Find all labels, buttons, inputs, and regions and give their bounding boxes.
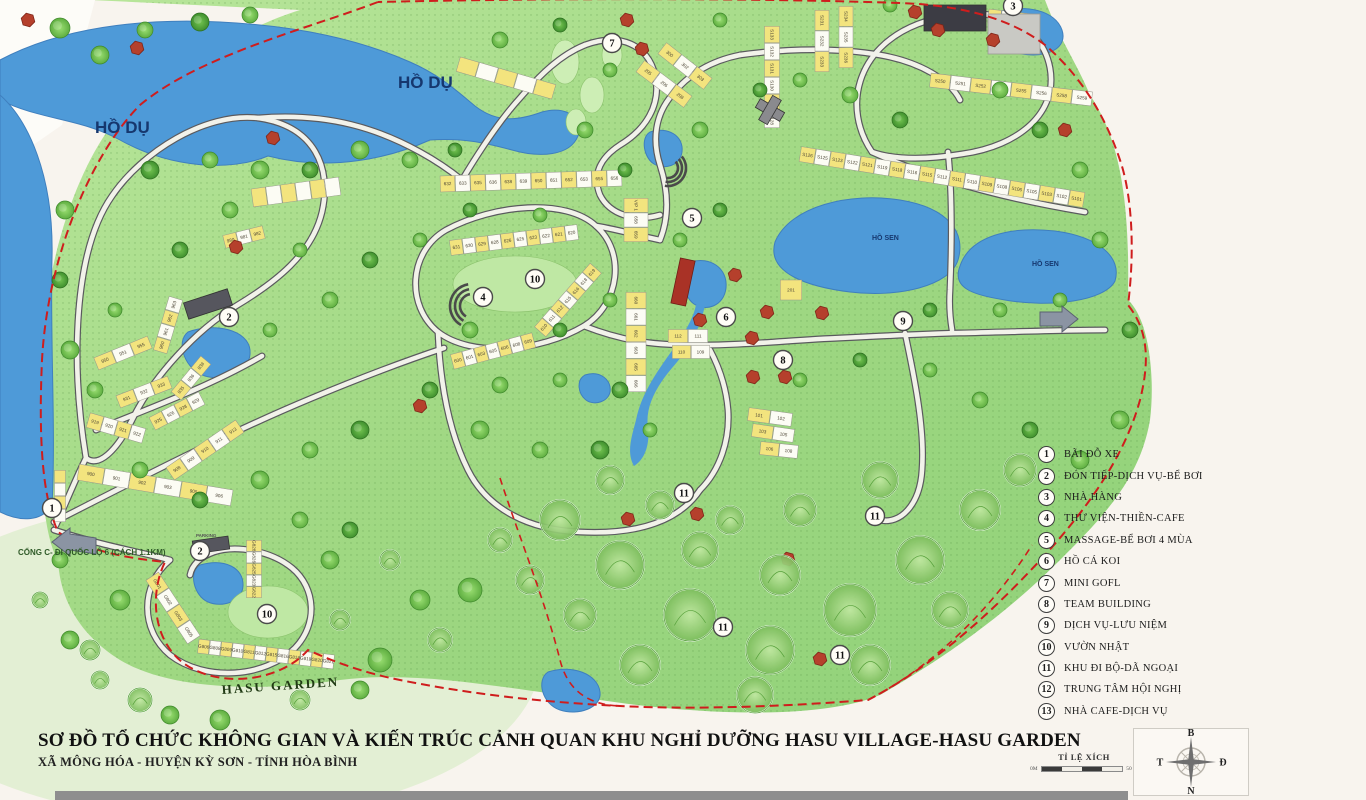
villa-lot xyxy=(280,183,297,203)
svg-text:10: 10 xyxy=(262,610,273,621)
lot-number: S132 xyxy=(770,46,775,57)
villa-lot: 110 xyxy=(672,346,690,359)
villa-lot: 106 xyxy=(760,442,780,457)
legend-number: 7 xyxy=(1038,575,1055,592)
compass-box: B N T Đ xyxy=(1133,728,1249,796)
villa-lot: 653 xyxy=(577,171,592,187)
legend-item: 3NHÀ HÀNG xyxy=(1038,487,1238,508)
villa-lot: 111 xyxy=(688,330,707,343)
villa-lot: S109 xyxy=(978,176,995,193)
scale-bar xyxy=(1041,766,1124,772)
legend-item: 2ĐÓN TIẾP-DỊCH VỤ-BỂ BƠI xyxy=(1038,465,1238,486)
villa-lot: S116 xyxy=(904,164,921,181)
lot-number: S235 xyxy=(844,32,849,43)
scale-min: 0M xyxy=(1030,766,1038,772)
lot-number: G822 xyxy=(252,587,257,599)
legend-number: 11 xyxy=(1038,660,1055,677)
villa-lot: S106 xyxy=(1008,181,1025,198)
villa-lot: 652 xyxy=(561,172,576,188)
lot-number: S234 xyxy=(844,11,849,22)
svg-text:Đ: Đ xyxy=(1219,758,1226,769)
legend-item: 11KHU ĐI BỘ-DÃ NGOẠI xyxy=(1038,658,1238,679)
legend-number: 3 xyxy=(1038,489,1055,506)
lot-number: 652 xyxy=(565,177,573,182)
legend-number: 4 xyxy=(1038,510,1055,527)
map-marker: 5 xyxy=(683,209,702,228)
villa-lot: 112 xyxy=(668,330,687,343)
villa-lot: 628 xyxy=(488,234,502,250)
villa-lot xyxy=(295,181,312,201)
legend-number: 12 xyxy=(1038,681,1055,698)
lot-number: 623 xyxy=(529,234,538,240)
lot-number: 653 xyxy=(580,177,588,182)
villa-lot: 201 xyxy=(780,280,801,300)
villa-lot xyxy=(266,185,283,205)
svg-text:3: 3 xyxy=(1010,2,1015,13)
villa-lot: 621 xyxy=(552,226,566,242)
villa-lot: S112 xyxy=(934,168,951,185)
legend-number: 13 xyxy=(1038,703,1055,720)
villa-lot: S252 xyxy=(970,78,991,94)
svg-text:6: 6 xyxy=(723,313,728,324)
villa-lot: S103 xyxy=(1038,185,1055,202)
villa-lot: S233 xyxy=(815,52,829,72)
villa-lot: G823 xyxy=(247,575,262,587)
lot-number: 658 xyxy=(634,216,639,224)
footer: SƠ ĐỒ TỔ CHỨC KHÔNG GIAN VÀ KIẾN TRÚC CẢ… xyxy=(38,730,1038,770)
legend-label: NHÀ HÀNG xyxy=(1064,492,1122,503)
lot-number: 656 xyxy=(610,176,618,181)
villa-lot: 650 xyxy=(531,173,546,189)
scale-box: TỈ LỆ XÍCH 0M 50 M xyxy=(1030,752,1138,772)
legend-number: 5 xyxy=(1038,532,1055,549)
villa-lot: S259 xyxy=(1071,90,1092,106)
map-subtitle: XÃ MÔNG HÓA - HUYỆN KỲ SƠN - TỈNH HÒA BÌ… xyxy=(38,755,1038,770)
villa-lot: 620 xyxy=(565,225,579,241)
legend-label: BÃI ĐỖ XE xyxy=(1064,449,1119,460)
villa-lot: S101 xyxy=(1068,190,1085,207)
map-marker: 10 xyxy=(258,605,277,624)
villa-lot: S123 xyxy=(829,151,846,168)
svg-text:4: 4 xyxy=(480,293,486,304)
lot-number: 639 xyxy=(519,179,527,184)
lot-number: S233 xyxy=(820,56,825,67)
lot-number: 110 xyxy=(678,349,686,354)
map-marker: 11 xyxy=(866,507,885,526)
svg-text:9: 9 xyxy=(900,317,905,328)
map-marker: 11 xyxy=(831,646,850,665)
villa-lot: 660 xyxy=(626,292,646,308)
map-marker: 4 xyxy=(474,288,493,307)
villa-lot: 625 xyxy=(513,231,527,247)
lot-number: 620 xyxy=(567,230,576,236)
lot-number: 622 xyxy=(542,233,551,239)
legend-item: 5MASSAGE-BỂ BƠI 4 MÙA xyxy=(1038,530,1238,551)
lot-number: 660 xyxy=(634,296,639,304)
compass-rose-icon: B N T Đ xyxy=(1134,729,1248,795)
lot-number: G828 xyxy=(252,540,257,552)
villa-lot: S126 xyxy=(799,147,816,164)
lot-number: 111 xyxy=(695,333,702,338)
villa-lot: 661 xyxy=(626,309,646,325)
legend-number: 6 xyxy=(1038,553,1055,570)
legend-number: 1 xyxy=(1038,446,1055,463)
lot-number: S131 xyxy=(770,63,775,74)
villa-lot: 655 xyxy=(592,171,607,187)
villa-lot: 629 xyxy=(475,236,489,252)
lot-number: 666 xyxy=(634,380,639,388)
lot-number: 626 xyxy=(503,238,512,244)
lot-number: 112 xyxy=(674,333,682,338)
villa-lot: G826 xyxy=(247,552,262,564)
lot-number: 662 xyxy=(634,330,639,338)
legend-item: 1BÃI ĐỖ XE xyxy=(1038,444,1238,465)
lot-number: 629 xyxy=(478,241,487,247)
villa-lot: 103 xyxy=(751,424,773,440)
villa-lot: 108 xyxy=(779,444,799,459)
villa-lot xyxy=(55,470,66,482)
villa-lot: 632 xyxy=(440,176,455,192)
map-marker: 11 xyxy=(714,618,733,637)
legend-label: ĐÓN TIẾP-DỊCH VỤ-BỂ BƠI xyxy=(1064,471,1203,482)
villa-lot: 631 xyxy=(449,239,463,255)
villa-lot: 638 xyxy=(501,174,516,190)
villa-lot: 626 xyxy=(501,233,515,249)
lot-number: 635 xyxy=(474,180,482,185)
lot-number: 633 xyxy=(459,181,467,186)
lot-number: G826 xyxy=(252,552,257,564)
villa-lot: S236 xyxy=(839,48,853,68)
villa-lot: S110 xyxy=(964,173,981,190)
villa-lot: S235 xyxy=(839,27,853,47)
lot-number: 655 xyxy=(595,176,603,181)
villa-lot: S232 xyxy=(815,31,829,51)
lot-number: S133 xyxy=(770,29,775,40)
map-marker: 2 xyxy=(220,308,239,327)
villa-lot: VIP 1 xyxy=(624,198,648,212)
legend-item: 7MINI GOFL xyxy=(1038,572,1238,593)
lot-number: 630 xyxy=(465,242,474,248)
villa-lot: S108 xyxy=(993,178,1010,195)
svg-text:2: 2 xyxy=(226,313,231,324)
villa-lot: 630 xyxy=(462,237,476,253)
lot-number: 632 xyxy=(444,181,452,186)
villa-lot: 101 xyxy=(747,408,770,424)
lot-number: 665 xyxy=(634,363,639,371)
svg-text:10: 10 xyxy=(530,275,541,286)
villa-lot: S231 xyxy=(815,10,829,30)
villa-lot: 665 xyxy=(626,359,646,375)
lot-number: G825 xyxy=(252,563,257,575)
legend-item: 4THƯ VIỆN-THIỀN-CAFE xyxy=(1038,508,1238,529)
villa-lot: 662 xyxy=(626,326,646,342)
lot-number: 108 xyxy=(784,448,793,454)
svg-text:T: T xyxy=(1157,758,1164,769)
villa-lot: G822 xyxy=(247,587,262,599)
svg-text:11: 11 xyxy=(679,489,689,500)
villa-lot: S255 xyxy=(1010,83,1031,99)
lot-number: 631 xyxy=(452,244,461,250)
legend-label: TRUNG TÂM HỘI NGHỊ xyxy=(1064,684,1182,695)
villa-lot: S251 xyxy=(950,75,971,91)
svg-text:5: 5 xyxy=(689,214,694,225)
villa-lot: S250 xyxy=(929,73,950,89)
legend-item: 9DỊCH VỤ-LƯU NIỆM xyxy=(1038,615,1238,636)
lot-number: 106 xyxy=(765,446,774,452)
villa-lot: 636 xyxy=(486,174,501,190)
svg-text:2: 2 xyxy=(197,547,202,558)
legend-label: HỒ CÁ KOI xyxy=(1064,556,1120,567)
legend-label: MINI GOFL xyxy=(1064,578,1121,589)
lot-number: 663 xyxy=(634,346,639,354)
lot-number: S231 xyxy=(820,15,825,26)
villa-lot: S118 xyxy=(889,161,906,178)
map-label: HỒ DỤ xyxy=(398,73,453,92)
villa-lot: S234 xyxy=(839,6,853,26)
villa-lot: S258 xyxy=(1051,87,1072,103)
map-label: HỒ DỤ xyxy=(95,118,150,137)
legend-item: 8TEAM BUILDING xyxy=(1038,594,1238,615)
villa-lot xyxy=(324,177,341,197)
legend-label: DỊCH VỤ-LƯU NIỆM xyxy=(1064,620,1167,631)
legend-label: MASSAGE-BỂ BƠI 4 MÙA xyxy=(1064,535,1193,546)
lot-number: 636 xyxy=(489,180,497,185)
lot-number: 621 xyxy=(555,231,564,237)
legend-item: 13NHÀ CAFE-DỊCH VỤ xyxy=(1038,701,1238,722)
villa-lot: S102 xyxy=(1053,188,1070,205)
legend-number: 9 xyxy=(1038,617,1055,634)
svg-text:11: 11 xyxy=(718,623,728,634)
legend-label: TEAM BUILDING xyxy=(1064,599,1151,610)
lot-number: 650 xyxy=(535,178,543,183)
villa-lot: S115 xyxy=(919,166,936,183)
villa-lot: 982 xyxy=(249,226,265,242)
scale-label: TỈ LỆ XÍCH xyxy=(1030,752,1138,762)
svg-text:7: 7 xyxy=(609,39,614,50)
svg-text:1: 1 xyxy=(49,504,54,515)
villa-lot: 102 xyxy=(769,411,792,427)
bottom-bar xyxy=(55,791,1128,800)
villa-lot: S122 xyxy=(844,154,861,171)
legend: 1BÃI ĐỖ XE2ĐÓN TIẾP-DỊCH VỤ-BỂ BƠI3NHÀ H… xyxy=(1038,444,1238,722)
map-marker: 10 xyxy=(526,270,545,289)
masterplan-page: 9009019029039059069089099109119139199209… xyxy=(0,0,1366,800)
map-label: CỔNG C- ĐI QUỐC LỘ 6 (CÁCH 1.1KM) xyxy=(18,547,166,557)
legend-number: 10 xyxy=(1038,639,1055,656)
villa-lot: 105 xyxy=(772,427,794,443)
lot-number: S236 xyxy=(844,52,849,63)
villa-lot: 635 xyxy=(470,175,485,191)
villa-lot: 658 xyxy=(624,213,648,227)
villa-lot: S121 xyxy=(859,156,876,173)
villa-lot: 109 xyxy=(691,346,709,359)
villa-lot: 663 xyxy=(626,342,646,358)
legend-item: 6HỒ CÁ KOI xyxy=(1038,551,1238,572)
legend-label: THƯ VIỆN-THIỀN-CAFE xyxy=(1064,513,1185,524)
villa-lot: S119 xyxy=(874,159,891,176)
map-marker: 9 xyxy=(894,312,913,331)
villa-lot: G811 xyxy=(243,644,256,659)
svg-text:N: N xyxy=(1187,786,1195,795)
villa-lot: S256 xyxy=(1031,85,1052,101)
lot-number: VIP 1 xyxy=(634,200,639,212)
svg-text:11: 11 xyxy=(870,512,880,523)
villa-lot: 651 xyxy=(546,172,561,188)
villa-lot xyxy=(55,483,66,495)
map-marker: 8 xyxy=(774,351,793,370)
villa-lot: G810 xyxy=(231,643,244,658)
lot-number: 659 xyxy=(634,231,639,239)
legend-label: NHÀ CAFE-DỊCH VỤ xyxy=(1064,706,1168,717)
map-marker: 2 xyxy=(191,542,210,561)
villa-lot xyxy=(251,187,268,207)
map-label: PARKING xyxy=(196,533,217,538)
map-marker: 7 xyxy=(603,34,622,53)
villa-lot: 622 xyxy=(539,228,553,244)
lot-number: 628 xyxy=(491,239,500,245)
map-marker: 3 xyxy=(1004,0,1023,16)
map-marker: 11 xyxy=(675,484,694,503)
villa-lot xyxy=(310,179,327,199)
villa-lot: 623 xyxy=(526,229,540,245)
lot-number: 201 xyxy=(787,287,795,292)
villa-lot: S125 xyxy=(814,149,831,166)
villa-lot: G825 xyxy=(247,563,262,575)
lot-number: S232 xyxy=(820,36,825,47)
lot-number: 651 xyxy=(550,178,558,183)
lot-number: 109 xyxy=(697,349,705,354)
villa-lot: 659 xyxy=(624,228,648,242)
legend-number: 8 xyxy=(1038,596,1055,613)
legend-label: KHU ĐI BỘ-DÃ NGOẠI xyxy=(1064,663,1178,674)
villa-lot: 639 xyxy=(516,173,531,189)
villa-lot: S111 xyxy=(949,171,966,188)
villa-lot: S132 xyxy=(765,43,780,59)
lot-number: 638 xyxy=(504,179,512,184)
lot-number: 661 xyxy=(634,313,639,321)
lot-number: 625 xyxy=(516,236,525,242)
villa-lot: 633 xyxy=(455,175,470,191)
lot-number: S130 xyxy=(770,80,775,91)
villa-lot: 666 xyxy=(626,376,646,392)
lot-number: G823 xyxy=(252,575,257,587)
legend-number: 2 xyxy=(1038,468,1055,485)
legend-label: VƯỜN NHẬT xyxy=(1064,642,1129,653)
villa-lot: S105 xyxy=(1023,183,1040,200)
villa-lot: S133 xyxy=(765,26,780,42)
legend-item: 12TRUNG TÂM HỘI NGHỊ xyxy=(1038,679,1238,700)
legend-item: 10VƯỜN NHẬT xyxy=(1038,637,1238,658)
map-marker: 1 xyxy=(43,499,62,518)
map-marker: 6 xyxy=(717,308,736,327)
svg-text:B: B xyxy=(1188,729,1195,739)
villa-lot: G828 xyxy=(247,540,262,552)
map-title: SƠ ĐỒ TỔ CHỨC KHÔNG GIAN VÀ KIẾN TRÚC CẢ… xyxy=(38,730,1038,752)
svg-text:11: 11 xyxy=(835,651,845,662)
villa-lot: S131 xyxy=(765,60,780,76)
svg-text:8: 8 xyxy=(780,356,785,367)
